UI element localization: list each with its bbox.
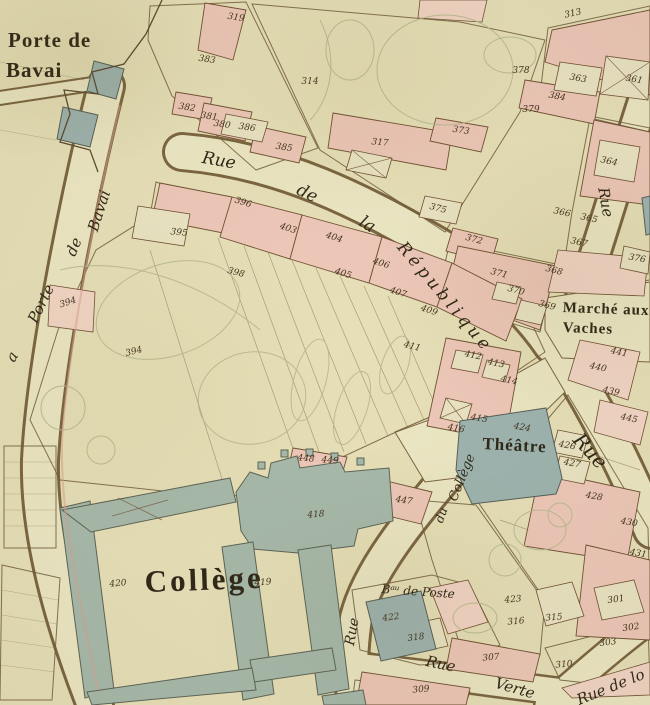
rue-de-la-porte-de-bavai-seg2: de (62, 235, 86, 259)
parcel-number: 373 (452, 125, 470, 137)
parcel-number: 371 (489, 267, 508, 281)
rue-de-la-republique-seg2: de (293, 180, 321, 207)
porte-de-bavai-line2: Bavai (6, 58, 62, 83)
historic-cadastral-map[interactable]: Porte deBavaiBavaidePorteaRuedelaRépubli… (0, 0, 650, 705)
parcel-number: 420 (109, 578, 127, 589)
rue-du-college-seg2: du (432, 506, 450, 525)
parcel-number: 302 (622, 622, 640, 634)
parcel-number: 440 (589, 361, 608, 374)
parcel-number: 406 (371, 257, 390, 272)
parcel-number: 309 (412, 684, 430, 695)
rue-de-la-republique-seg1: Rue (201, 148, 238, 174)
marche-aux-vaches-line2: Vaches (562, 320, 613, 339)
parcel-number: 378 (512, 66, 529, 76)
parcel-number: 413 (487, 357, 506, 370)
parcel-number: 372 (464, 233, 483, 247)
parcel-number: 394 (58, 296, 77, 311)
parcel-number: 448 (297, 453, 315, 464)
parcel-number: 313 (564, 7, 583, 20)
parcel-number: 445 (620, 412, 639, 425)
parcel-number: 431 (629, 548, 648, 561)
parcel-number: 367 (570, 236, 589, 249)
parcel-number: 370 (506, 284, 525, 298)
parcel-number: 396 (233, 196, 252, 211)
parcel-number: 303 (599, 637, 617, 649)
parcel-number: 430 (620, 517, 639, 530)
parcel-number: 301 (607, 594, 625, 606)
rue-de-lo: Rue de lo (574, 665, 647, 705)
parcel-number: 414 (500, 374, 519, 387)
porte-de-bavai-line1: Porte de (8, 28, 91, 53)
parcel-number: 310 (555, 659, 573, 670)
parcel-number: 447 (395, 495, 413, 507)
parcel-number: 404 (324, 231, 343, 246)
parcel-number: 395 (170, 227, 188, 238)
parcel-number: 407 (388, 286, 407, 301)
rue-de-la-republique-seg4: République (393, 238, 497, 357)
parcel-number: 316 (507, 616, 525, 627)
parcel-number: 449 (321, 455, 339, 466)
parcel-number: 424 (513, 422, 532, 435)
parcel-number: 398 (226, 266, 245, 280)
rue-de-la-porte-de-bavai-seg4: a (2, 348, 22, 365)
parcel-number: 315 (545, 612, 563, 623)
parcel-number: 439 (602, 385, 621, 398)
parcel-number: 415 (470, 413, 489, 426)
parcel-number: 318 (407, 632, 425, 644)
parcel-number: 412 (464, 349, 483, 362)
parcel-number: 386 (238, 122, 256, 134)
theatre: Théâtre (482, 434, 547, 457)
college: Collège (144, 560, 264, 600)
rue-de-la-republique-seg3: la (355, 212, 379, 237)
parcel-number: 307 (482, 652, 500, 663)
parcel-number: 380 (213, 119, 231, 131)
parcel-number: 403 (278, 222, 297, 237)
parcel-number: 416 (447, 423, 466, 436)
parcel-number: 384 (548, 91, 567, 104)
parcel-number: 365 (580, 212, 599, 225)
rue-de-la-porte-de-bavai-seg1: Bavai (84, 188, 114, 234)
parcel-number: 319 (227, 12, 245, 24)
parcel-number: 394 (124, 345, 143, 359)
parcel-number: 422 (382, 612, 400, 624)
parcel-number: 409 (419, 304, 438, 319)
rue-de-la-porte-de-bavai-seg3: Porte (24, 282, 58, 326)
parcel-number: 314 (301, 77, 318, 87)
parcel-number: 376 (628, 253, 647, 266)
parcel-number: 418 (307, 509, 325, 520)
marche-aux-vaches-line1: Marché aux (562, 300, 649, 320)
parcel-number: 363 (569, 73, 588, 86)
parcel-number: 379 (522, 105, 539, 115)
parcel-number: 428 (585, 491, 604, 504)
parcel-number: 317 (371, 137, 389, 148)
labels-layer: Porte deBavaiBavaidePorteaRuedelaRépubli… (0, 0, 650, 705)
rue-verte-seg2: Verte (493, 674, 537, 702)
parcel-number: 427 (563, 458, 582, 471)
parcel-number: 411 (402, 340, 421, 354)
parcel-number: 375 (428, 202, 447, 216)
parcel-number: 426 (558, 440, 577, 453)
rue-right-side: Rue (594, 186, 617, 219)
parcel-number: 385 (275, 142, 293, 154)
bureau-de-poste: Bᵃᵘ de Poste (381, 582, 455, 601)
rue-du-college-seg3: Rue (342, 617, 363, 647)
parcel-number: 405 (333, 267, 352, 282)
parcel-number: 441 (610, 346, 629, 359)
parcel-number: 364 (600, 155, 619, 168)
rue-verte-seg1: Rue (424, 652, 457, 676)
parcel-number: 368 (544, 264, 563, 278)
parcel-number: 382 (178, 102, 196, 114)
parcel-number: 366 (553, 206, 572, 219)
parcel-number: 419 (254, 577, 272, 588)
rue-du-college-seg1: Collège (446, 452, 479, 504)
parcel-number: 423 (504, 594, 522, 605)
parcel-number: 383 (198, 54, 216, 66)
parcel-number: 369 (537, 299, 556, 313)
parcel-number: 361 (625, 74, 644, 87)
